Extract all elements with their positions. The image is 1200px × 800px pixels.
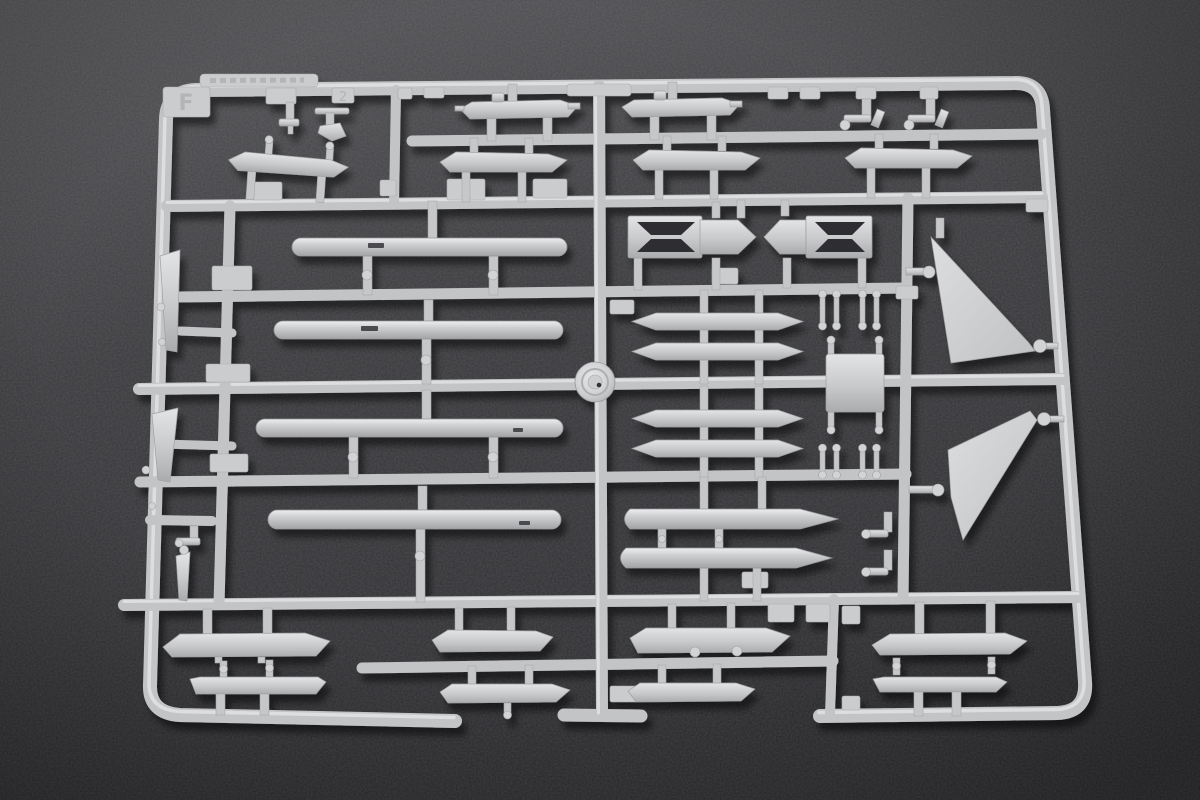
sprue-letter: F (178, 91, 193, 116)
embossed-text-ridge (200, 74, 318, 87)
sprue-photo: F 2 (0, 0, 1200, 800)
embossed-number: 2 (339, 90, 347, 105)
sprue-photo-canvas: F 2 (0, 0, 1200, 800)
sprue-letter-tab: F (163, 87, 210, 117)
round-disc-part (575, 362, 615, 402)
